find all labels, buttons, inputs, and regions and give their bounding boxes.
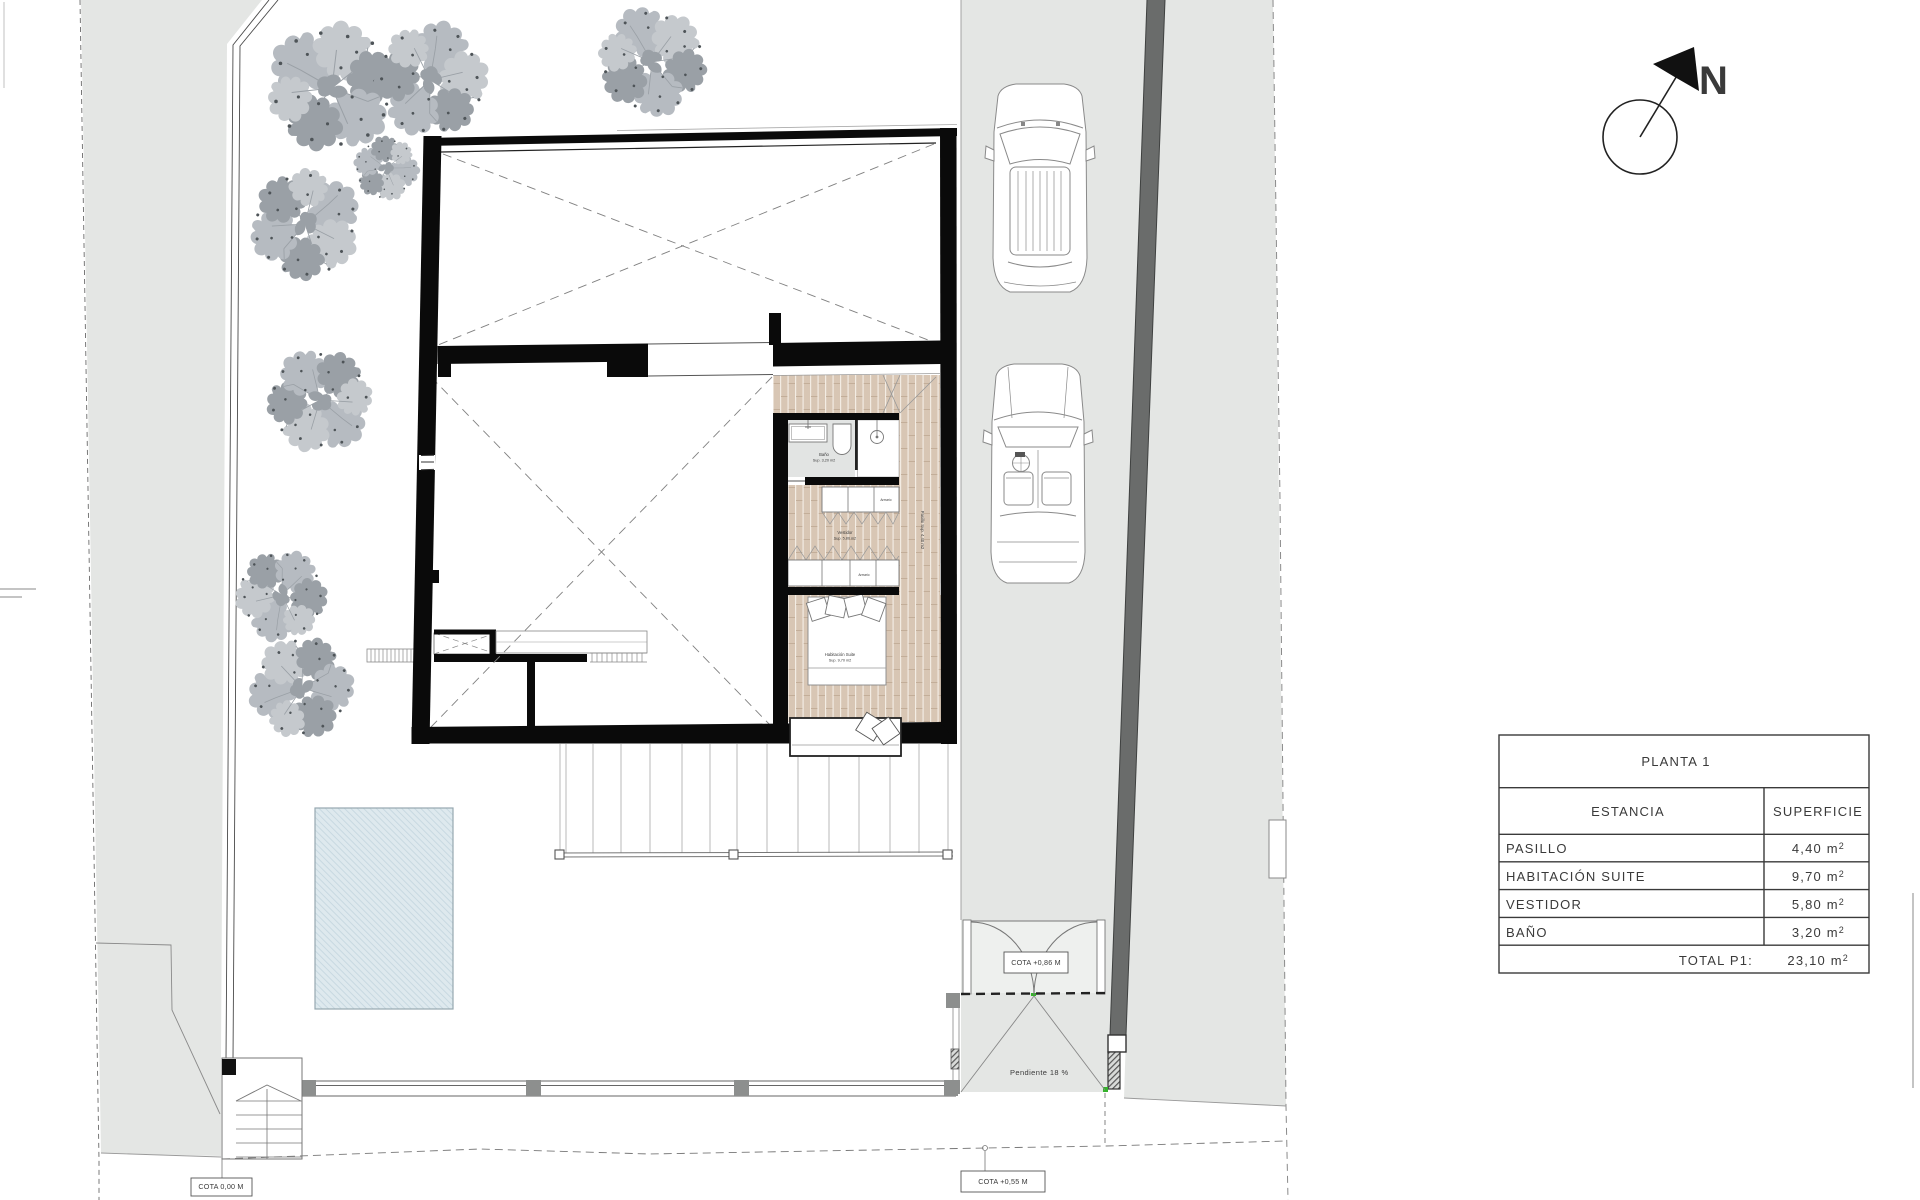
svg-text:N: N — [1699, 59, 1728, 103]
svg-text:VESTIDOR: VESTIDOR — [1506, 897, 1582, 912]
svg-text:Armario: Armario — [880, 498, 891, 502]
svg-text:Sup. 3,20 m2: Sup. 3,20 m2 — [813, 459, 836, 463]
svg-text:9,70 m2: 9,70 m2 — [1792, 869, 1845, 884]
svg-text:COTA +0,86 M: COTA +0,86 M — [1011, 958, 1061, 967]
svg-text:COTA +0,55 M: COTA +0,55 M — [978, 1177, 1028, 1186]
svg-text:HABITACIÓN SUITE: HABITACIÓN SUITE — [1506, 869, 1646, 884]
svg-text:Baño: Baño — [819, 452, 829, 457]
svg-text:Pasillo Sup. 4,40 m2: Pasillo Sup. 4,40 m2 — [920, 511, 925, 550]
svg-text:Sup. 9,70 m2: Sup. 9,70 m2 — [829, 659, 852, 663]
svg-text:Sup. 5,80 m2: Sup. 5,80 m2 — [834, 537, 857, 541]
svg-text:5,80 m2: 5,80 m2 — [1792, 897, 1845, 912]
svg-text:PASILLO: PASILLO — [1506, 841, 1568, 856]
svg-text:COTA 0,00 M: COTA 0,00 M — [198, 1182, 243, 1191]
svg-text:PLANTA 1: PLANTA 1 — [1641, 754, 1710, 769]
svg-text:ESTANCIA: ESTANCIA — [1591, 804, 1665, 819]
svg-text:SUPERFICIE: SUPERFICIE — [1773, 804, 1863, 819]
svg-text:Pendiente 18 %: Pendiente 18 % — [1010, 1068, 1069, 1077]
svg-text:BAÑO: BAÑO — [1506, 925, 1548, 940]
svg-text:4,40 m2: 4,40 m2 — [1792, 841, 1845, 856]
svg-text:TOTAL P1:: TOTAL P1: — [1679, 953, 1753, 968]
svg-text:Armario: Armario — [858, 573, 869, 577]
svg-text:23,10 m2: 23,10 m2 — [1787, 953, 1849, 968]
svg-text:3,20 m2: 3,20 m2 — [1792, 925, 1845, 940]
svg-text:Vestidor: Vestidor — [837, 530, 853, 535]
svg-text:Habitación Suite: Habitación Suite — [825, 652, 856, 657]
